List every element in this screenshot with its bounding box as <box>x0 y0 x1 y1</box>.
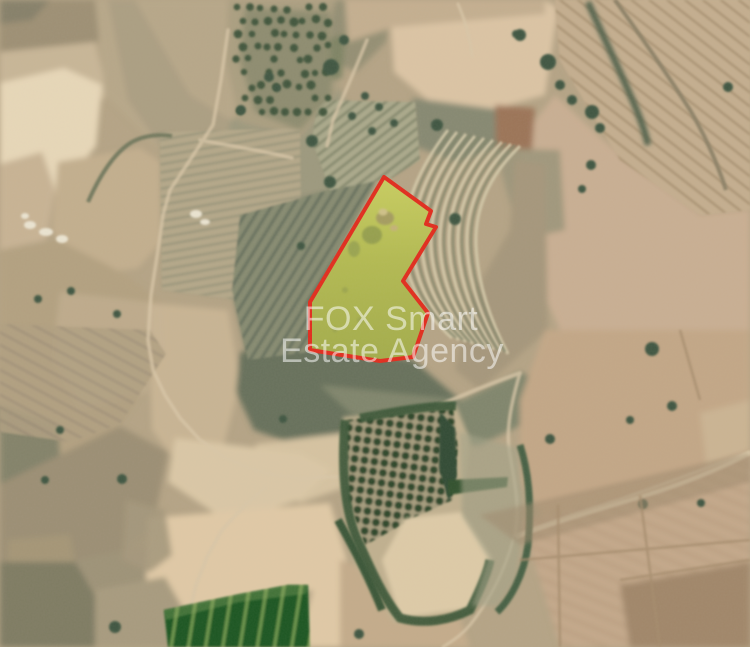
svg-text:Estate Agency: Estate Agency <box>280 332 504 370</box>
